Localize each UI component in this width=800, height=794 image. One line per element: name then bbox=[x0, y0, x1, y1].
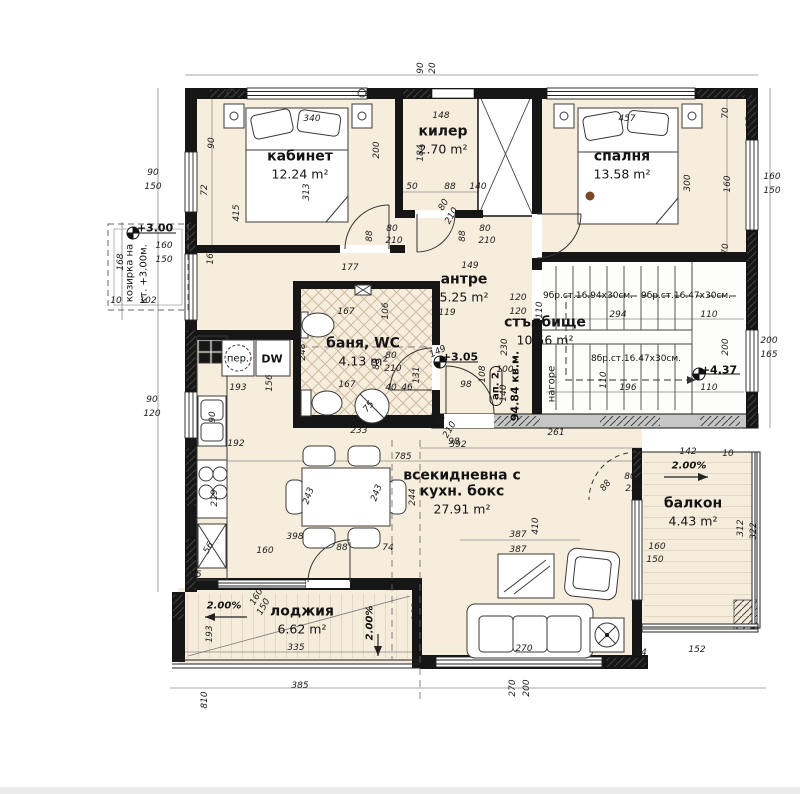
window-office bbox=[247, 88, 367, 99]
coffee-table bbox=[498, 554, 554, 598]
window-bedroom-right bbox=[746, 140, 758, 230]
floorplan-sheet: 9020340148457907216041531320018430030070… bbox=[0, 0, 800, 794]
window-balcony-door bbox=[632, 500, 642, 600]
scan-edge-band bbox=[0, 787, 800, 794]
stair-south-wall bbox=[432, 414, 758, 428]
window-left-2 bbox=[185, 254, 197, 320]
armchair bbox=[564, 547, 621, 600]
window-bedroom bbox=[547, 88, 695, 99]
window-loggia bbox=[218, 580, 306, 588]
title-block: 2 РАЗПРЕДЕЛЕНИЕ ВТОРИ ЕТАЖ кт. +3.05м. 1… bbox=[0, 724, 800, 794]
canopy-outline bbox=[108, 224, 188, 310]
shaft bbox=[478, 92, 533, 216]
window-left-1 bbox=[185, 152, 197, 212]
floorplan-drawing bbox=[0, 0, 800, 794]
corner-unit bbox=[590, 618, 624, 652]
window-stair bbox=[746, 330, 758, 392]
sofa bbox=[467, 604, 593, 658]
window-kitchen bbox=[185, 392, 197, 438]
